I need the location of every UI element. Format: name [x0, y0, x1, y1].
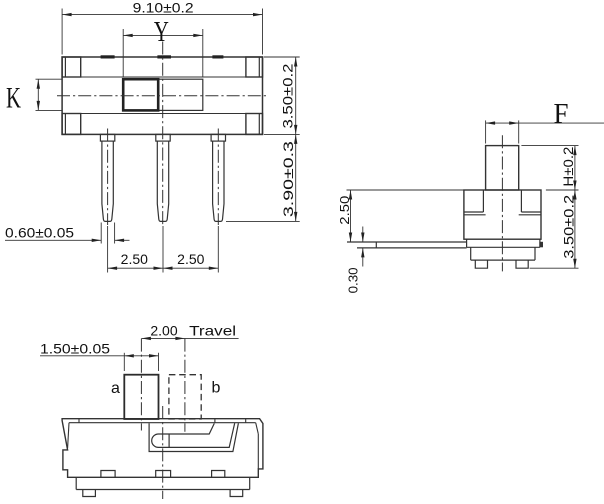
- svg-text:a: a: [111, 380, 120, 397]
- svg-text:2.50: 2.50: [337, 196, 352, 225]
- svg-text:2.50: 2.50: [121, 251, 148, 267]
- svg-text:2.00: 2.00: [150, 323, 177, 339]
- svg-text:Travel: Travel: [189, 323, 236, 339]
- svg-text:3.50±0.2: 3.50±0.2: [280, 63, 296, 128]
- svg-text:1.50±0.05: 1.50±0.05: [40, 341, 110, 357]
- svg-text:0.30: 0.30: [346, 267, 361, 293]
- svg-text:0.60±0.05: 0.60±0.05: [5, 224, 74, 240]
- svg-text:3.90±0.3: 3.90±0.3: [280, 141, 296, 217]
- svg-text:3.50±0.2: 3.50±0.2: [561, 195, 577, 259]
- svg-text:F: F: [554, 98, 569, 130]
- svg-text:2.50: 2.50: [177, 251, 204, 267]
- svg-text:9.10±0.2: 9.10±0.2: [133, 0, 194, 16]
- svg-text:H±0.2: H±0.2: [560, 146, 576, 186]
- svg-text:K: K: [6, 81, 21, 114]
- svg-text:b: b: [211, 379, 220, 396]
- svg-text:Y: Y: [154, 16, 169, 48]
